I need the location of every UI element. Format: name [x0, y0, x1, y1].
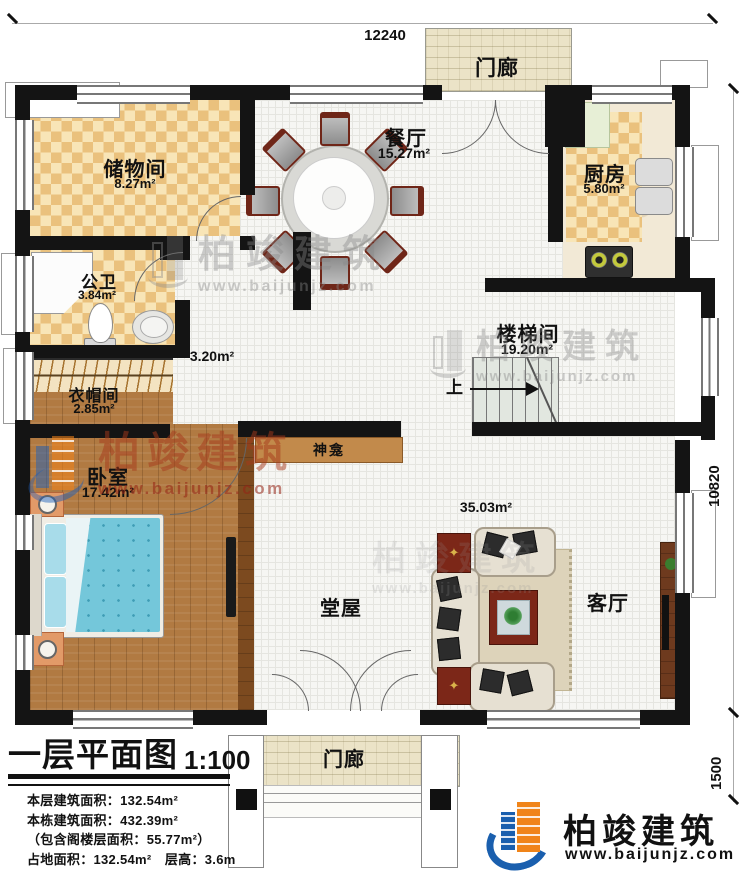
- stove-burner: [591, 252, 607, 268]
- kitchen-sink-basin: [635, 187, 673, 215]
- wall: [640, 710, 690, 725]
- title-underline-thick: [8, 774, 230, 779]
- porch-top-label: 门廊: [475, 52, 519, 82]
- shrine-label: 神龛: [313, 440, 345, 460]
- stair-arrow-line: [470, 388, 528, 390]
- wall: [545, 85, 585, 147]
- window: [15, 120, 34, 210]
- living-label: 客厅: [587, 587, 629, 616]
- wall: [240, 236, 255, 250]
- storage-area: 8.27m²: [114, 176, 155, 191]
- kitchen-area: 5.80m²: [583, 181, 624, 196]
- cloakroom-area: 2.85m²: [73, 401, 114, 416]
- wall: [293, 232, 311, 310]
- wall: [472, 422, 715, 436]
- brand-logo-building-orange: [517, 802, 540, 852]
- wall: [701, 292, 715, 318]
- page-title: 一层平面图: [8, 728, 178, 776]
- side-table: ✦: [437, 533, 471, 573]
- window: [15, 635, 34, 670]
- wall: [15, 85, 30, 120]
- window: [77, 85, 190, 104]
- porch-bottom-label: 门廊: [323, 743, 365, 772]
- corridor-area: 3.20m²: [190, 348, 234, 364]
- dining-area: 15.27m²: [378, 145, 430, 161]
- bathroom-area: 3.84m²: [78, 288, 116, 302]
- info-floor-area: 本层建筑面积：132.54m²: [27, 791, 236, 811]
- brand-logo: 柏竣建筑 www.baijunjz.com: [483, 798, 743, 876]
- living-tv: [662, 595, 669, 650]
- dimension-width: 12240: [340, 27, 430, 44]
- porch-step-line: [246, 802, 444, 803]
- info-block: 本层建筑面积：132.54m² 本栋建筑面积：432.39m² （包含阁楼层面积…: [27, 791, 236, 869]
- wall: [423, 85, 442, 100]
- info-attic-note: （包含阁楼层面积：55.77m²）: [27, 830, 236, 850]
- dining-table-hub: [322, 186, 346, 210]
- window: [675, 493, 694, 593]
- wall: [420, 710, 487, 725]
- title-underline-thin: [8, 784, 230, 786]
- sofa-cushion: [436, 576, 462, 602]
- dining-chair: [320, 256, 350, 290]
- wall: [190, 85, 290, 100]
- lamp: [38, 640, 57, 659]
- pillow: [44, 523, 67, 575]
- wall: [548, 142, 563, 242]
- bedroom-tv: [226, 537, 236, 617]
- wall: [15, 550, 30, 635]
- porch-step-line: [240, 793, 450, 794]
- dimension-porch-depth: 1500: [708, 736, 725, 790]
- stove-burner: [612, 252, 628, 268]
- wall: [193, 710, 267, 725]
- plant: [503, 606, 523, 626]
- window: [73, 710, 193, 729]
- info-total-area: 本栋建筑面积：432.39m²: [27, 811, 236, 831]
- dimension-line-right: [733, 90, 734, 802]
- bathroom-sink-bowl: [140, 316, 168, 338]
- wall: [675, 440, 690, 493]
- porch-column-right: [430, 789, 451, 810]
- wall: [15, 670, 30, 725]
- sofa-cushion: [437, 607, 462, 632]
- dimension-height: 10820: [706, 437, 723, 507]
- floorplan-canvas: ✦ ✦ 储物间 8.27m² 餐厅 15.27m² 厨房 5.80m² 公卫 3…: [0, 0, 750, 881]
- window: [592, 85, 672, 104]
- brand-logo-building-blue: [501, 812, 515, 850]
- window: [290, 85, 423, 104]
- sofa-cushion: [479, 668, 504, 693]
- window: [15, 515, 34, 550]
- window: [15, 352, 34, 420]
- stair-arrow-head: [526, 382, 539, 396]
- window-sill: [691, 145, 719, 241]
- dining-chair: [390, 186, 424, 216]
- lamp: [38, 495, 57, 514]
- title-block: 一层平面图 1:100: [8, 728, 251, 776]
- stairs: [472, 357, 559, 424]
- wall: [485, 278, 715, 292]
- window-sill: [660, 60, 708, 88]
- porch-column-left: [236, 789, 257, 810]
- dimension-line-top: [12, 23, 713, 24]
- wall: [240, 100, 255, 195]
- bedroom-area: 17.42m²: [82, 484, 134, 500]
- bedroom-hall-wall: [238, 437, 254, 710]
- wall: [238, 421, 401, 437]
- info-footprint: 占地面积：132.54m² 层高：3.6m: [27, 850, 236, 870]
- title-scale: 1:100: [184, 745, 251, 776]
- sofa-cushion: [437, 637, 461, 661]
- wall: [15, 345, 190, 358]
- wall: [675, 593, 690, 710]
- toilet: [88, 303, 113, 343]
- pillow: [44, 576, 67, 628]
- living-area: 35.03m²: [460, 499, 512, 515]
- window: [675, 147, 694, 237]
- brand-url: www.baijunjz.com: [565, 846, 735, 864]
- window: [487, 710, 640, 729]
- side-table: ✦: [437, 667, 471, 705]
- stair-up-label: 上: [446, 373, 464, 398]
- wall: [15, 424, 170, 438]
- stairwell-area: 19.20m²: [501, 341, 553, 357]
- hall-label: 堂屋: [320, 592, 362, 621]
- window: [15, 256, 34, 332]
- window: [701, 318, 719, 396]
- dining-chair: [320, 112, 350, 146]
- kitchen-sink-basin: [635, 158, 673, 186]
- wall: [675, 85, 690, 147]
